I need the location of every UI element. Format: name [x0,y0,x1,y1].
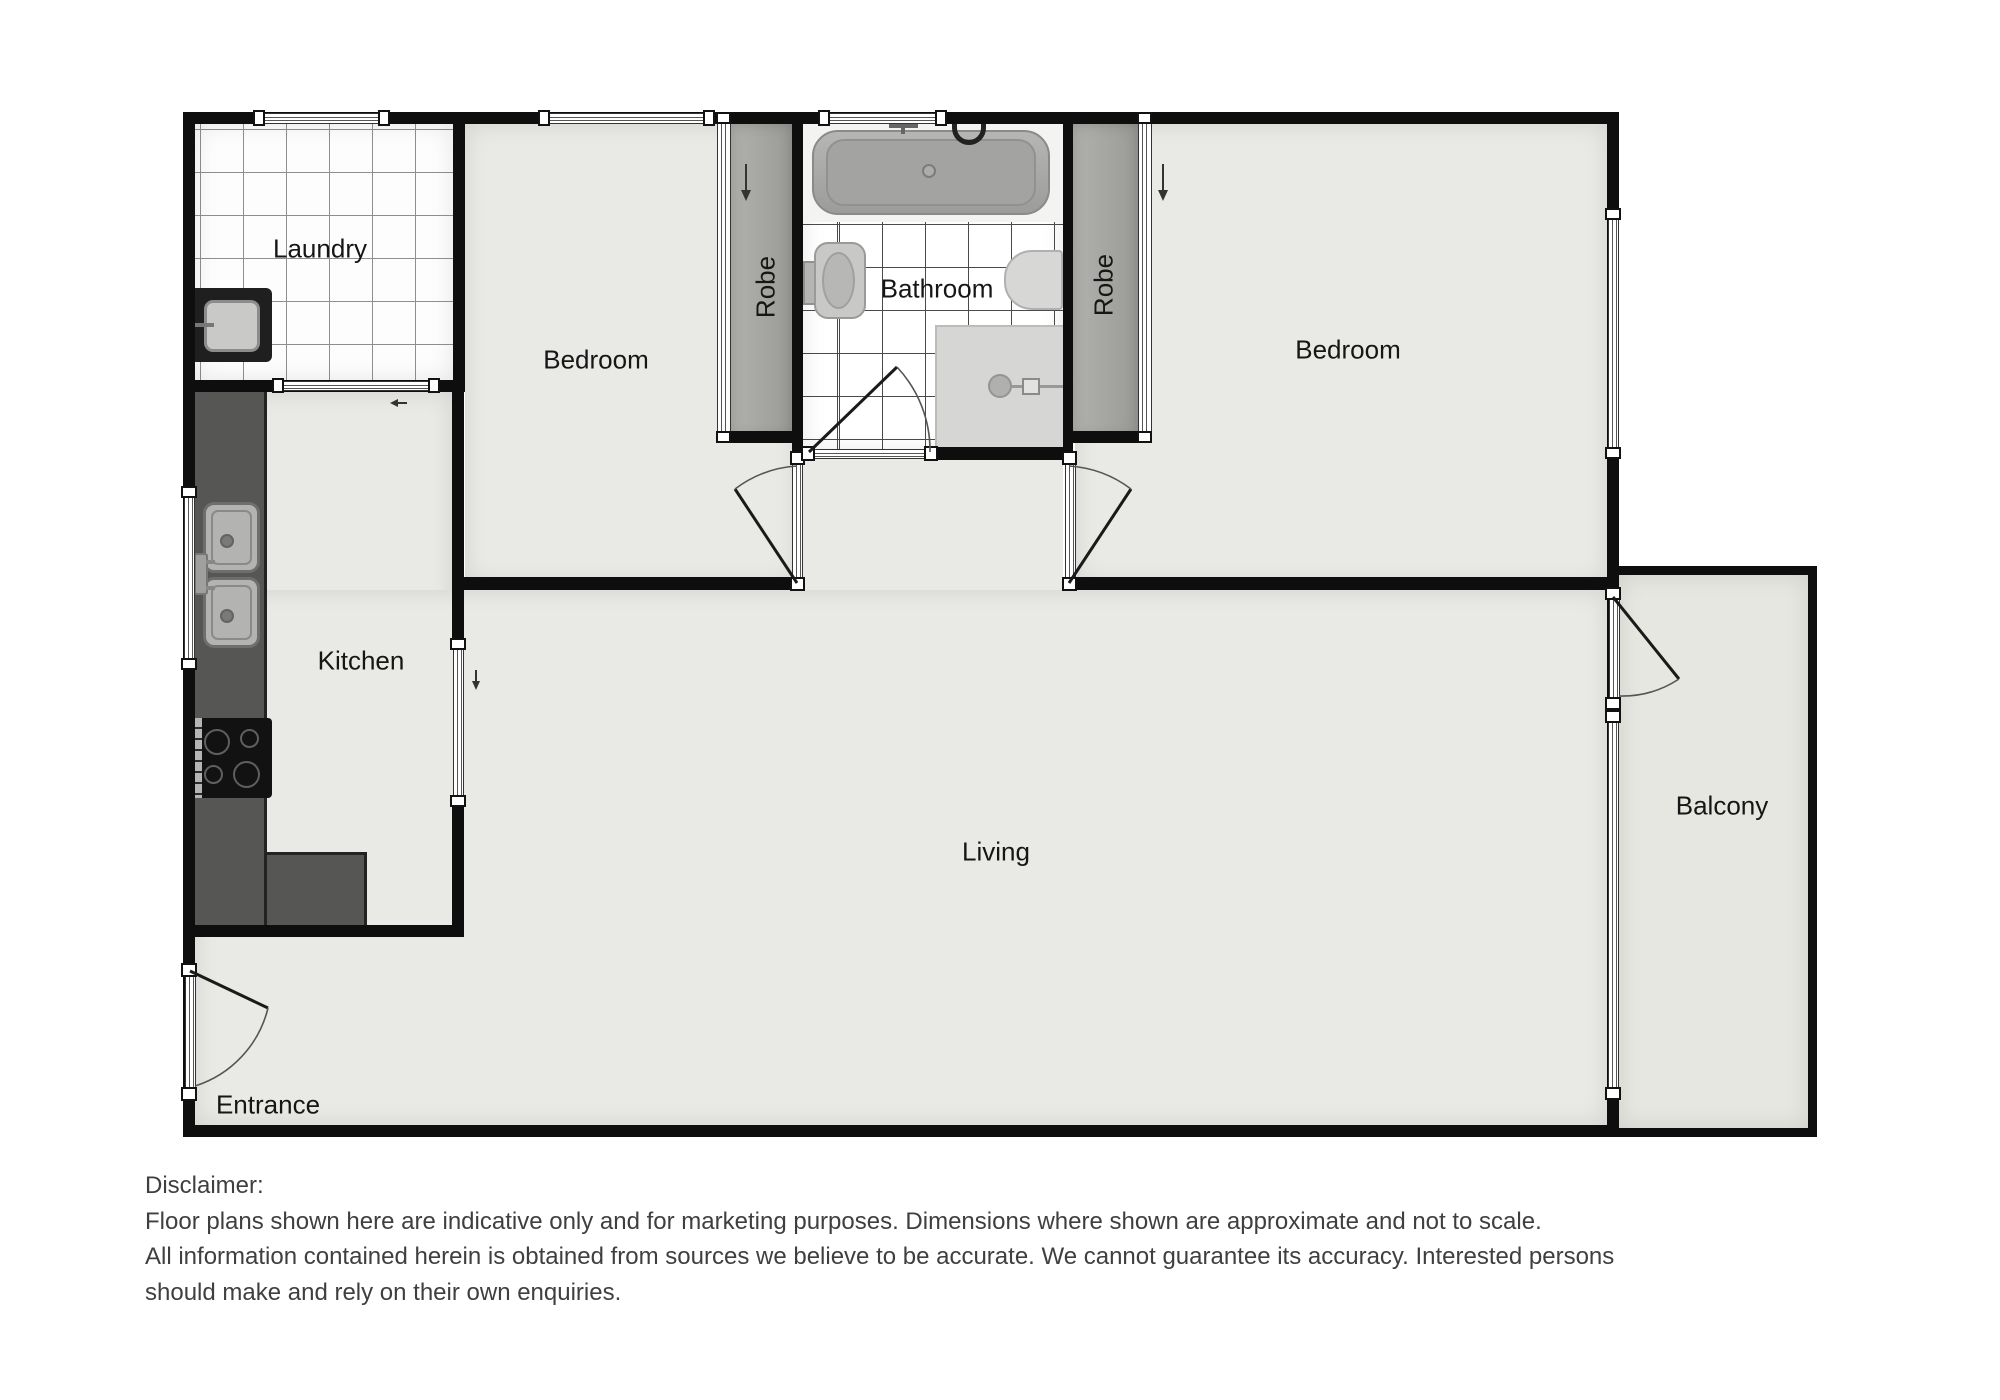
wall-bathroom-right [1063,124,1073,453]
laundry-sliding-door-end [272,378,284,393]
living-window-end [1605,1087,1621,1100]
balcony-door-threshold [1609,600,1620,697]
laundry-window-end [378,110,390,126]
bathroom-door-threshold [815,449,924,459]
balcony-door-jamb [1605,697,1621,710]
toilet-seat [822,252,855,309]
robe1-sliding-door-end [716,112,731,124]
laundry-window-end [253,110,265,126]
kitchen-counter [195,392,267,925]
bathroom-window-end [818,110,830,126]
kitchen-window [184,498,195,658]
wall-balcony-right [1808,566,1817,1137]
kitchen-label: Kitchen [318,646,405,677]
wall-balcony-top [1619,566,1817,575]
living-window [1608,723,1619,1087]
kitchen-sliding-door-end [450,638,466,650]
bedroom2-window-end [1605,208,1621,220]
bedroom2-window [1608,220,1619,447]
wall-bedroom1-bottom [452,577,792,590]
entrance-label: Entrance [216,1090,320,1121]
bathroom-basin [1004,250,1063,310]
robe1-label: Robe [751,256,782,318]
bathroom-label: Bathroom [881,274,994,305]
bedroom2-door-hinge [1062,577,1077,591]
bedroom1-door-threshold [792,465,803,577]
bedroom1-window-end [538,110,550,126]
entrance-door-jamb [181,1087,197,1101]
wall-kitchen-right-upper [452,392,464,650]
laundry-label: Laundry [273,234,367,265]
kitchen-window-end [181,486,197,498]
living-floor [195,590,1607,1125]
wall-balcony-bottom [1619,1128,1817,1137]
burner-1 [204,729,230,755]
kitchen-window-end [181,658,197,670]
burner-3 [204,765,223,784]
balcony-floor [1619,575,1808,1128]
wall-kitchen-right-lower [452,795,464,925]
entrance-door-threshold [185,977,196,1087]
kitchen-counter-return [267,852,367,925]
bedroom2-door-jamb [1062,451,1077,465]
wall-laundry-right [453,124,465,392]
shower-drain [988,374,1012,398]
bedroom2-door-threshold [1065,465,1076,577]
wall-robe1-bathroom [792,124,803,453]
robe2-sliding-door-end [1137,112,1152,124]
bedroom1-label: Bedroom [543,345,649,376]
kitchen-sliding-door-end [450,795,466,807]
bedroom1-window-end [703,110,715,126]
laundry-window [265,113,378,124]
bathroom-window-end [935,110,947,126]
kitchen-tap-spout-1 [206,560,215,564]
balcony-label: Balcony [1676,791,1769,822]
bathroom-door-jamb [924,446,938,461]
floor-plan-page: Laundry Bedroom Robe Bathroom Robe Bedro… [0,0,2000,1400]
kitchen-tap-spout-2 [206,586,215,590]
disclaimer-block: Disclaimer: Floor plans shown here are i… [145,1168,1614,1310]
bathroom-door-hinge [801,446,815,461]
robe2-sliding-door [1138,124,1152,437]
balcony-door-hinge [1605,587,1621,600]
burner-4 [233,761,260,788]
laundry-sliding-door-end [428,378,440,393]
disclaimer-line: Disclaimer: [145,1168,1614,1204]
bedroom2-window-end [1605,447,1621,459]
wall-bathroom-bottom-right [938,447,1073,460]
bath-drain [922,164,936,178]
living-label: Living [962,837,1030,868]
wall-kitchen-bottom [183,925,464,937]
wall-bedroom2-bottom [1075,577,1607,590]
shower-mixer [1022,378,1040,395]
hallway-floor [803,453,1063,593]
kitchen-sliding-door [453,650,464,795]
bathroom-window [830,113,935,124]
robe2-label: Robe [1089,254,1120,316]
bedroom2-label: Bedroom [1295,335,1401,366]
bath-tap-bar [889,124,918,128]
robe2-sliding-door-end [1137,431,1152,443]
living-window-end [1605,710,1621,723]
entrance-door-hinge [181,963,197,977]
cooktop [192,718,272,798]
robe1-sliding-door-end [716,431,731,443]
disclaimer-line: Floor plans shown here are indicative on… [145,1204,1614,1240]
disclaimer-line: All information contained herein is obta… [145,1239,1614,1275]
burner-2 [240,729,259,748]
laundry-tap [192,323,214,327]
robe1-sliding-door [717,124,731,437]
laundry-sliding-door [284,381,428,391]
disclaimer-line: should make and rely on their own enquir… [145,1275,1614,1311]
wall-exterior-bottom [183,1125,1619,1137]
bedroom1-door-hinge [790,577,805,591]
bedroom1-window [550,113,703,124]
